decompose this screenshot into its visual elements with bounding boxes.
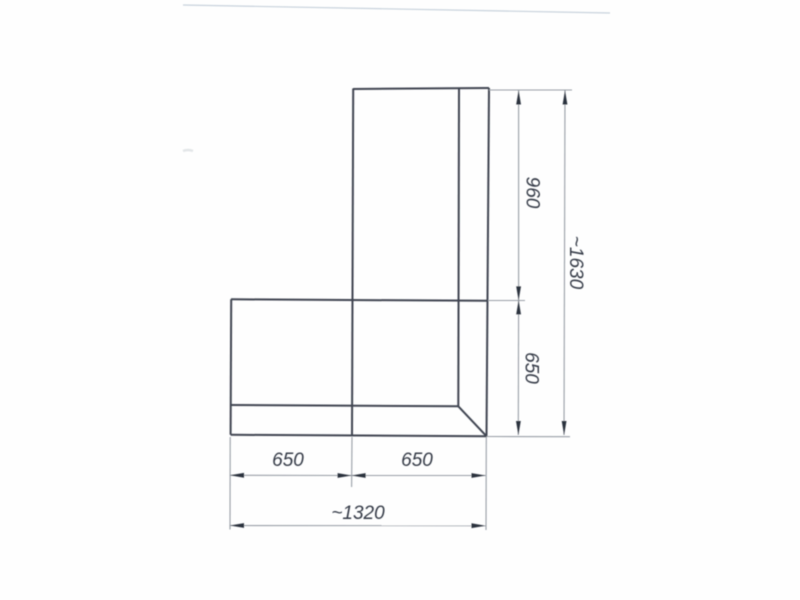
svg-text:650: 650	[272, 450, 304, 471]
svg-text:650: 650	[401, 450, 433, 471]
svg-text:960: 960	[521, 177, 542, 209]
svg-text:650: 650	[520, 352, 541, 384]
svg-text:~1320: ~1320	[331, 503, 385, 524]
svg-text:~1630: ~1630	[565, 236, 586, 290]
